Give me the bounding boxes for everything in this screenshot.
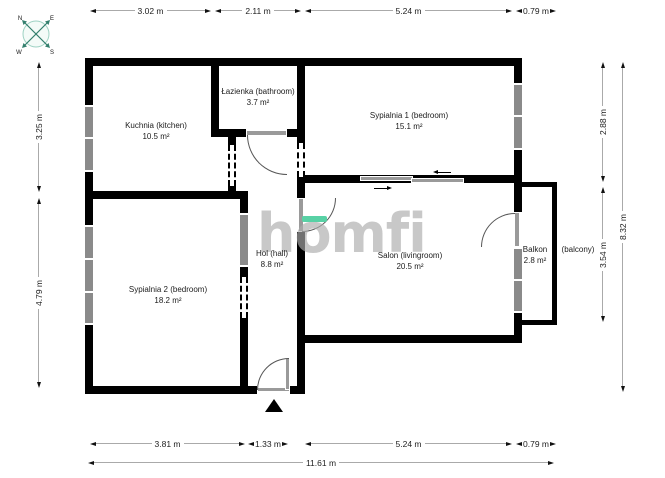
bedroom2-window: [85, 225, 93, 325]
dim-bottom-3: 5.24 m: [305, 438, 512, 449]
livingroom-window: [514, 247, 522, 313]
bedroom2-opening: [240, 277, 248, 318]
room-name: Hol (hall): [256, 249, 288, 260]
room-name: Kuchnia (kitchen): [125, 121, 187, 132]
entrance-marker-icon: [265, 399, 283, 412]
dim-label: 3.81 m: [152, 439, 184, 449]
floor-plan: N E W S: [0, 0, 665, 478]
room-label-bedroom1: Sypialnia 1 (bedroom) 15.1 m²: [370, 111, 448, 132]
entrance-door-arc: [257, 358, 289, 390]
dim-left-1: 3.25 m: [33, 62, 44, 192]
dim-bottom-total: 11.61 m: [88, 457, 554, 468]
kitchen-window: [85, 105, 93, 172]
compass-w-label: W: [16, 50, 22, 56]
sliding-door-panel-left: [360, 176, 413, 181]
dim-bottom-1: 3.81 m: [90, 438, 245, 449]
room-label-bedroom2: Sypialnia 2 (bedroom) 18.2 m²: [129, 285, 207, 306]
room-area: 2.8 m²: [523, 256, 547, 267]
dim-bottom-4: 0.79 m: [516, 438, 554, 449]
wall-balcony-bottom: [522, 320, 557, 325]
balcony-door-arc: [481, 213, 515, 247]
dim-label: 11.61 m: [303, 458, 339, 468]
dim-label: 3.54 m: [598, 239, 608, 271]
bedroom2-sliding-door: [240, 213, 248, 267]
compass-icon: N E W S: [13, 11, 59, 57]
bathroom-door-arc: [247, 135, 287, 175]
sliding-door-arrow-left: [438, 172, 451, 173]
room-name-en: (balcony): [562, 245, 595, 256]
room-area: 18.2 m²: [129, 296, 207, 307]
bedroom1-opening: [297, 143, 305, 177]
compass-s-label: S: [50, 50, 54, 56]
dim-label: 0.79 m: [522, 6, 550, 16]
compass-e-label: E: [50, 16, 54, 22]
dim-label: 3.02 m: [135, 6, 167, 16]
dim-top-3: 5.24 m: [305, 5, 512, 16]
room-name: Sypialnia 2 (bedroom): [129, 285, 207, 296]
room-label-livingroom: Salon (livingroom) 20.5 m²: [378, 251, 442, 272]
dim-right-total: 8.32 m: [617, 62, 628, 392]
room-area: 3.7 m²: [221, 98, 294, 109]
room-label-balcony-en: (balcony): [562, 245, 595, 256]
room-area: 15.1 m²: [370, 122, 448, 133]
wall-livingroom-bottom: [297, 335, 522, 343]
compass-n-label: N: [18, 16, 22, 22]
wall-bathroom-left: [211, 58, 219, 137]
dim-top-2: 2.11 m: [215, 5, 301, 16]
kitchen-opening: [228, 145, 236, 186]
dim-left-2: 4.79 m: [33, 198, 44, 388]
dim-top-4: 0.79 m: [516, 5, 554, 16]
room-name: Salon (livingroom): [378, 251, 442, 262]
room-label-hall: Hol (hall) 8.8 m²: [256, 249, 288, 270]
wall-kitchen-bottom: [85, 191, 248, 199]
dim-label: 3.25 m: [34, 111, 44, 143]
dim-top-1: 3.02 m: [90, 5, 211, 16]
room-label-kitchen: Kuchnia (kitchen) 10.5 m²: [125, 121, 187, 142]
room-label-bathroom: Łazienka (bathroom) 3.7 m²: [221, 87, 294, 108]
room-area: 8.8 m²: [256, 260, 288, 271]
dim-label: 4.79 m: [34, 277, 44, 309]
room-area: 20.5 m²: [378, 262, 442, 273]
bedroom1-window: [514, 83, 522, 150]
dim-label: 5.24 m: [393, 6, 425, 16]
dim-right-2: 3.54 m: [597, 187, 608, 322]
wall-balcony-right: [552, 182, 557, 325]
room-name: Balkon: [523, 245, 547, 256]
sliding-door-arrow-right: [374, 188, 387, 189]
dim-label: 0.79 m: [522, 439, 550, 449]
room-area: 10.5 m²: [125, 132, 187, 143]
wall-bathroom-right: [297, 58, 305, 137]
dim-right-1: 2.88 m: [597, 62, 608, 182]
dim-label: 2.11 m: [242, 6, 273, 16]
sliding-door-panel-right: [411, 178, 464, 183]
dim-label: 5.24 m: [393, 439, 425, 449]
room-name: Łazienka (bathroom): [221, 87, 294, 98]
room-name: Sypialnia 1 (bedroom): [370, 111, 448, 122]
dim-label: 2.88 m: [598, 106, 608, 138]
dim-label: 8.32 m: [618, 211, 628, 243]
dim-label: 1.33 m: [254, 439, 282, 449]
dim-bottom-2: 1.33 m: [248, 438, 297, 449]
homfi-accent-bar: [302, 216, 327, 222]
room-label-balcony: Balkon 2.8 m²: [523, 245, 547, 266]
